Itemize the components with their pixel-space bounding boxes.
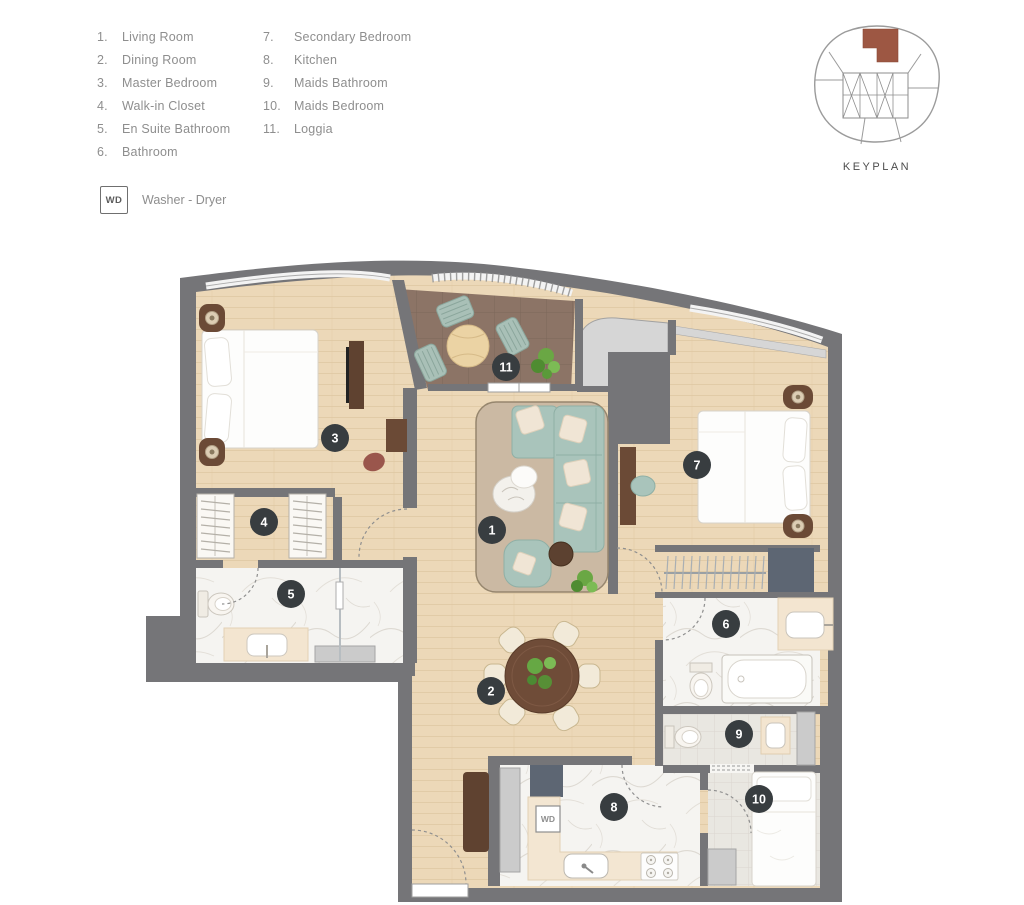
washer-dryer-tag: WD [541,814,555,824]
living-room-furniture [476,402,608,593]
floorplan-page: 1.Living Room2.Dining Room3.Master Bedro… [0,0,1024,905]
floorplan-svg: WD [0,0,1024,905]
room-marker-number: 3 [332,432,339,446]
room-marker-number: 5 [288,588,295,602]
kitchen-tall-cabinet [530,765,563,797]
room-marker-number: 2 [488,685,495,699]
master-tv-dresser [346,341,364,409]
entry-threshold [412,884,468,897]
closet-cabinet-box [768,548,814,592]
room-marker-number: 6 [723,618,730,632]
master-bed [202,330,318,448]
room-marker-number: 11 [499,361,512,375]
room-marker-number: 4 [261,516,268,530]
room-marker-number: 9 [736,728,743,742]
loggia-sliding-door [488,383,550,392]
room-marker-number: 8 [611,801,618,815]
room-marker-number: 7 [694,459,701,473]
kitchen-stove [641,853,678,880]
hallway-console [463,772,489,852]
room-marker-number: 1 [489,524,496,538]
room-marker-number: 10 [752,793,766,807]
